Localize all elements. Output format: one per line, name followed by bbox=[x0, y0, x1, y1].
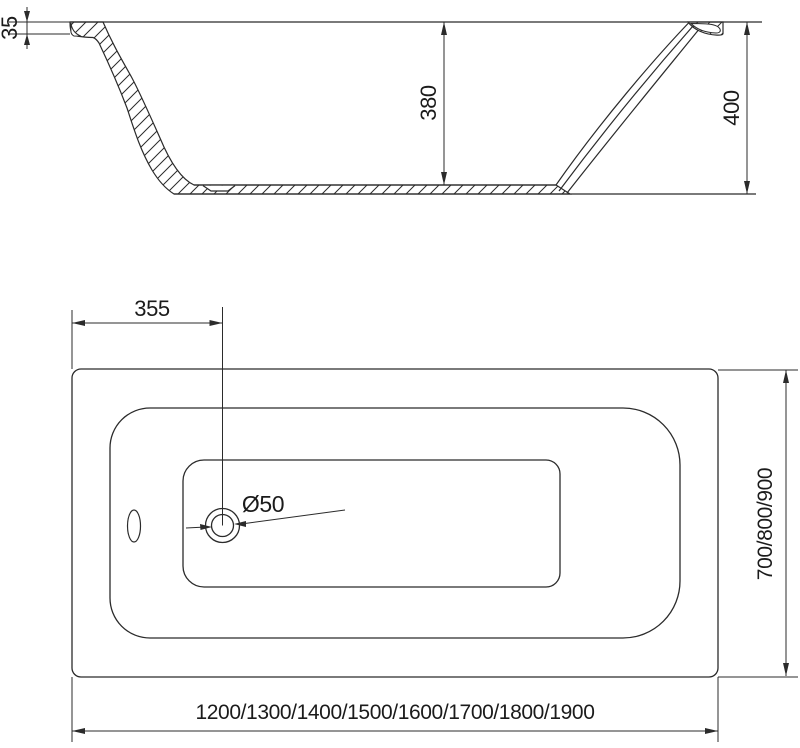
dim-length-arrow-right bbox=[705, 728, 718, 734]
drawing-canvas: 35 380 400 bbox=[0, 0, 800, 748]
overflow-hole bbox=[128, 510, 141, 542]
dim-400-label: 400 bbox=[719, 90, 744, 126]
dim-355-arrow-left bbox=[72, 320, 85, 326]
dim-400-arrow-bottom bbox=[744, 181, 750, 194]
dim-length-label: 1200/1300/1400/1500/1600/1700/1800/1900 bbox=[196, 701, 595, 724]
bathtub-technical-drawing: 35 380 400 bbox=[0, 0, 800, 748]
dim-355-arrow-right bbox=[210, 320, 223, 326]
tub-outer-rim bbox=[72, 369, 718, 677]
dim-d50-label: Ø50 bbox=[242, 491, 284, 517]
dim-355-label: 355 bbox=[134, 296, 170, 321]
right-wall-elevation-line-outer bbox=[556, 23, 689, 186]
right-wall-elevation-line-inner bbox=[567, 31, 698, 194]
dim-35-arrow-bottom bbox=[24, 34, 30, 45]
dim-380-arrow-bottom bbox=[441, 172, 447, 185]
dim-35-label: 35 bbox=[0, 16, 22, 40]
dim-inner-depth bbox=[441, 22, 447, 185]
dim-380-label: 380 bbox=[416, 85, 441, 121]
dim-length-arrow-left bbox=[72, 728, 85, 734]
tub-inner-rim bbox=[110, 408, 680, 638]
dim-width-arrow-bottom bbox=[783, 663, 789, 676]
side-section-view: 35 380 400 bbox=[0, 7, 762, 194]
dim-d50-tail-left bbox=[186, 527, 201, 528]
dim-width-label: 700/800/900 bbox=[754, 468, 777, 580]
dim-400-arrow-top bbox=[744, 22, 750, 35]
dim-380-arrow-top bbox=[441, 22, 447, 35]
dim-35-arrow-top bbox=[24, 11, 30, 22]
top-plan-view: 355 Ø50 700/800/900 1200/1300/1400/1500/… bbox=[72, 296, 798, 742]
tub-section-hatched-wall bbox=[70, 22, 570, 194]
right-wall-elevation-line-mid bbox=[559, 26, 693, 191]
dim-overall-height bbox=[744, 22, 750, 194]
dim-width-arrow-top bbox=[783, 370, 789, 383]
